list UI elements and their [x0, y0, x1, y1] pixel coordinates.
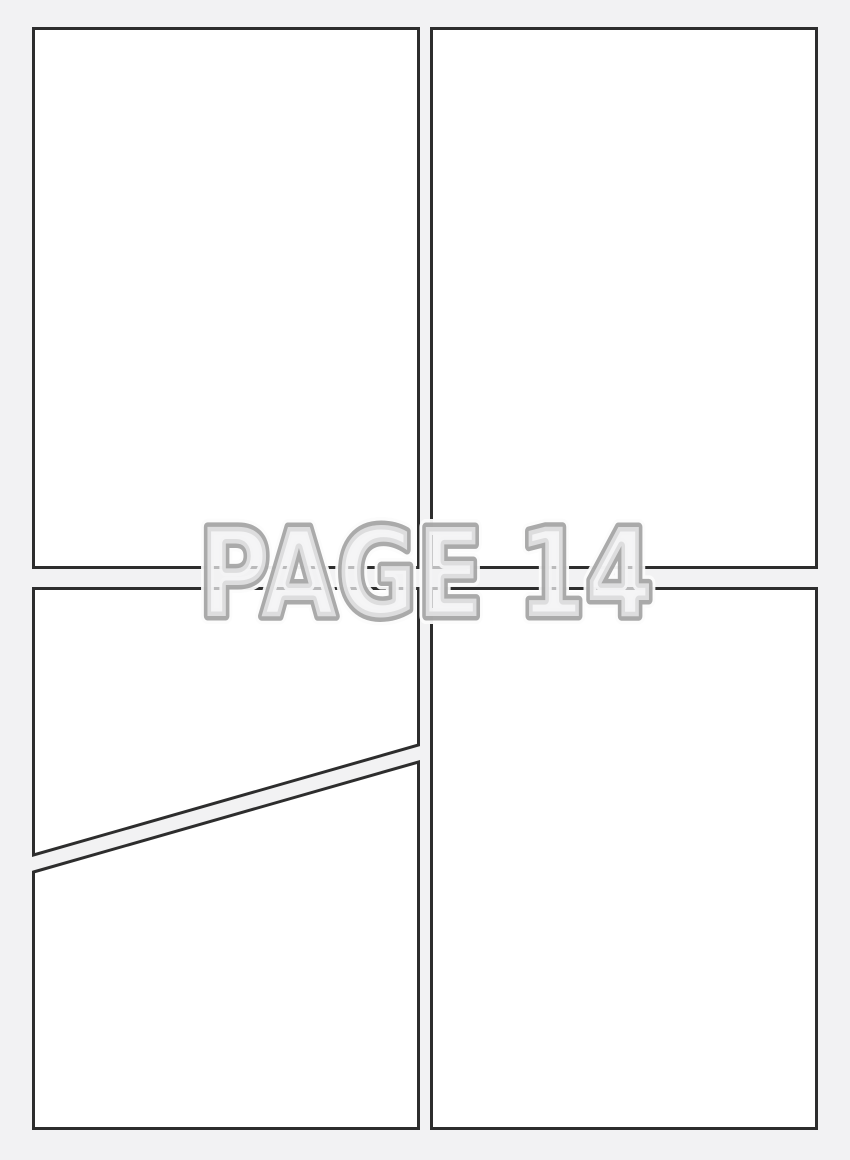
panel-bottom-right [430, 587, 818, 1130]
panel-bottom-left-group [32, 587, 420, 1130]
comic-page-template: PAGE 14 PAGE 14 PAGE 14 [0, 0, 850, 1160]
panel-top-left [32, 27, 420, 569]
panel-top-right [430, 27, 818, 569]
